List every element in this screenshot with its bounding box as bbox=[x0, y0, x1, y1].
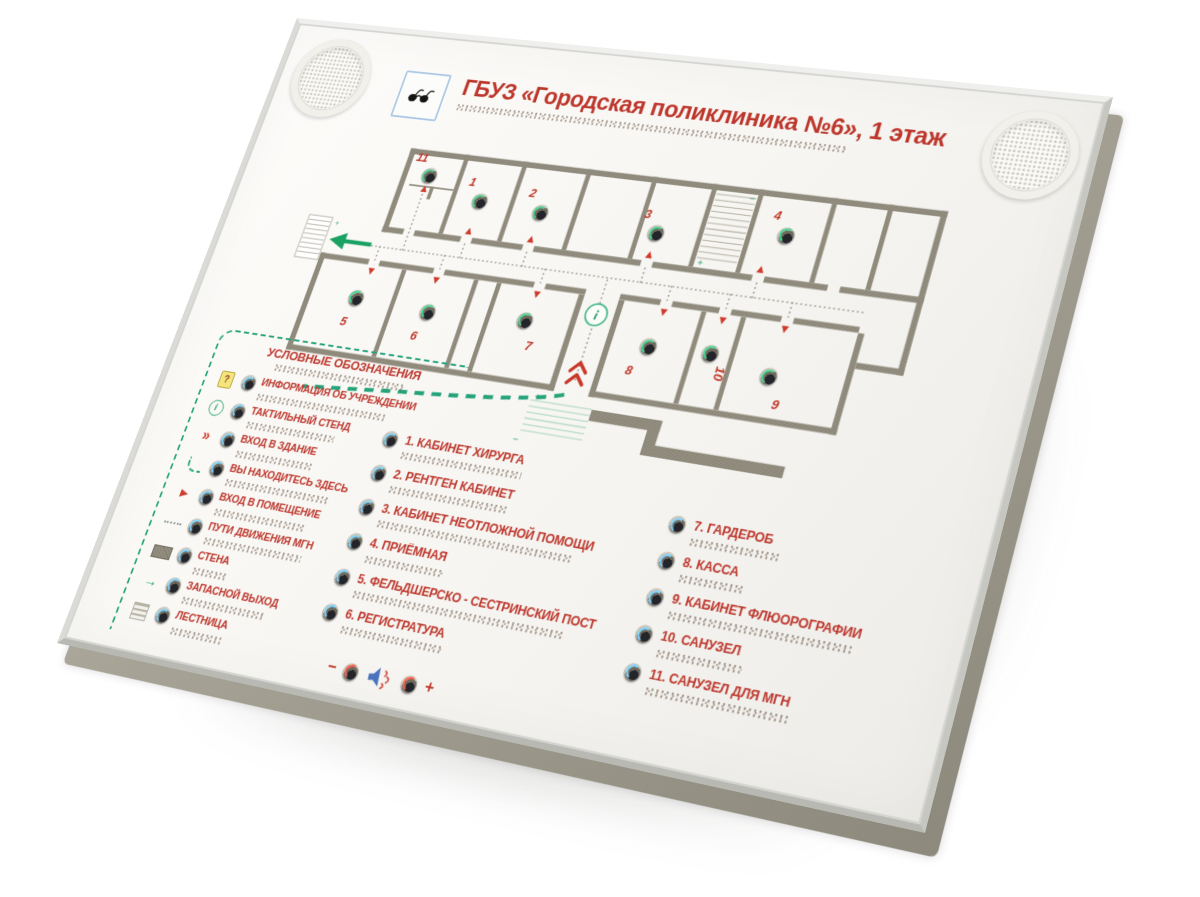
legend-tactile-button[interactable] bbox=[186, 518, 204, 535]
entrance-stairs-minus: − bbox=[511, 433, 521, 446]
interior-stairs bbox=[697, 194, 757, 263]
room-tactile-button-10[interactable] bbox=[634, 625, 654, 644]
legend-tactile-button[interactable] bbox=[229, 403, 247, 419]
volume-controls: − + bbox=[323, 654, 438, 701]
room-list-right: 7. ГАРДЕРОБ 8. КАССА 9. КАБИНЕТ ФЛЮОРОГР… bbox=[619, 516, 942, 747]
legend-tactile-button[interactable] bbox=[153, 607, 171, 624]
svg-text:+: + bbox=[333, 220, 340, 228]
photo-stage: ГБУЗ «Городская поликлиника №6», 1 этаж bbox=[0, 0, 1200, 897]
speaker-grille-left bbox=[279, 36, 382, 121]
dotted-route-icon bbox=[160, 513, 186, 532]
volume-down-button[interactable] bbox=[342, 663, 361, 681]
glasses-icon bbox=[390, 70, 452, 121]
room-tactile-button-11[interactable] bbox=[623, 662, 643, 681]
stairs-swatch-icon bbox=[127, 601, 153, 621]
entry-arrow-icon bbox=[171, 484, 197, 503]
double-chevron-icon: » bbox=[192, 427, 218, 445]
volume-up-button[interactable] bbox=[400, 675, 419, 694]
room-tactile-button-8[interactable] bbox=[657, 552, 677, 570]
wall-swatch-icon bbox=[149, 542, 175, 561]
legend-tactile-button[interactable] bbox=[208, 460, 226, 476]
entrance-stairs bbox=[521, 400, 592, 440]
speaker-icon bbox=[362, 663, 398, 694]
info-point: i bbox=[582, 303, 610, 327]
dashed-route-end-icon bbox=[182, 455, 208, 474]
room-tactile-button-9[interactable] bbox=[645, 588, 665, 607]
stairs-up-sign: + bbox=[696, 256, 705, 268]
emergency-exit-arrow-icon bbox=[327, 231, 375, 253]
braille-dots bbox=[191, 566, 229, 582]
legend-tactile-button[interactable] bbox=[219, 431, 237, 447]
volume-plus-sign: + bbox=[422, 679, 436, 698]
legend-tactile-button[interactable] bbox=[197, 489, 215, 506]
exterior-stairs-left: + bbox=[294, 214, 341, 260]
legend-tactile-button[interactable] bbox=[240, 375, 258, 391]
room-tactile-button-7[interactable] bbox=[668, 516, 687, 534]
legend-tactile-button[interactable] bbox=[175, 547, 193, 564]
you-are-here-chevron-icon bbox=[566, 362, 588, 385]
legend-tactile-button[interactable] bbox=[164, 577, 182, 594]
info-point-icon: i bbox=[203, 399, 229, 417]
question-sign-icon: ? bbox=[214, 371, 239, 389]
exit-arrow-icon: → bbox=[138, 572, 164, 592]
